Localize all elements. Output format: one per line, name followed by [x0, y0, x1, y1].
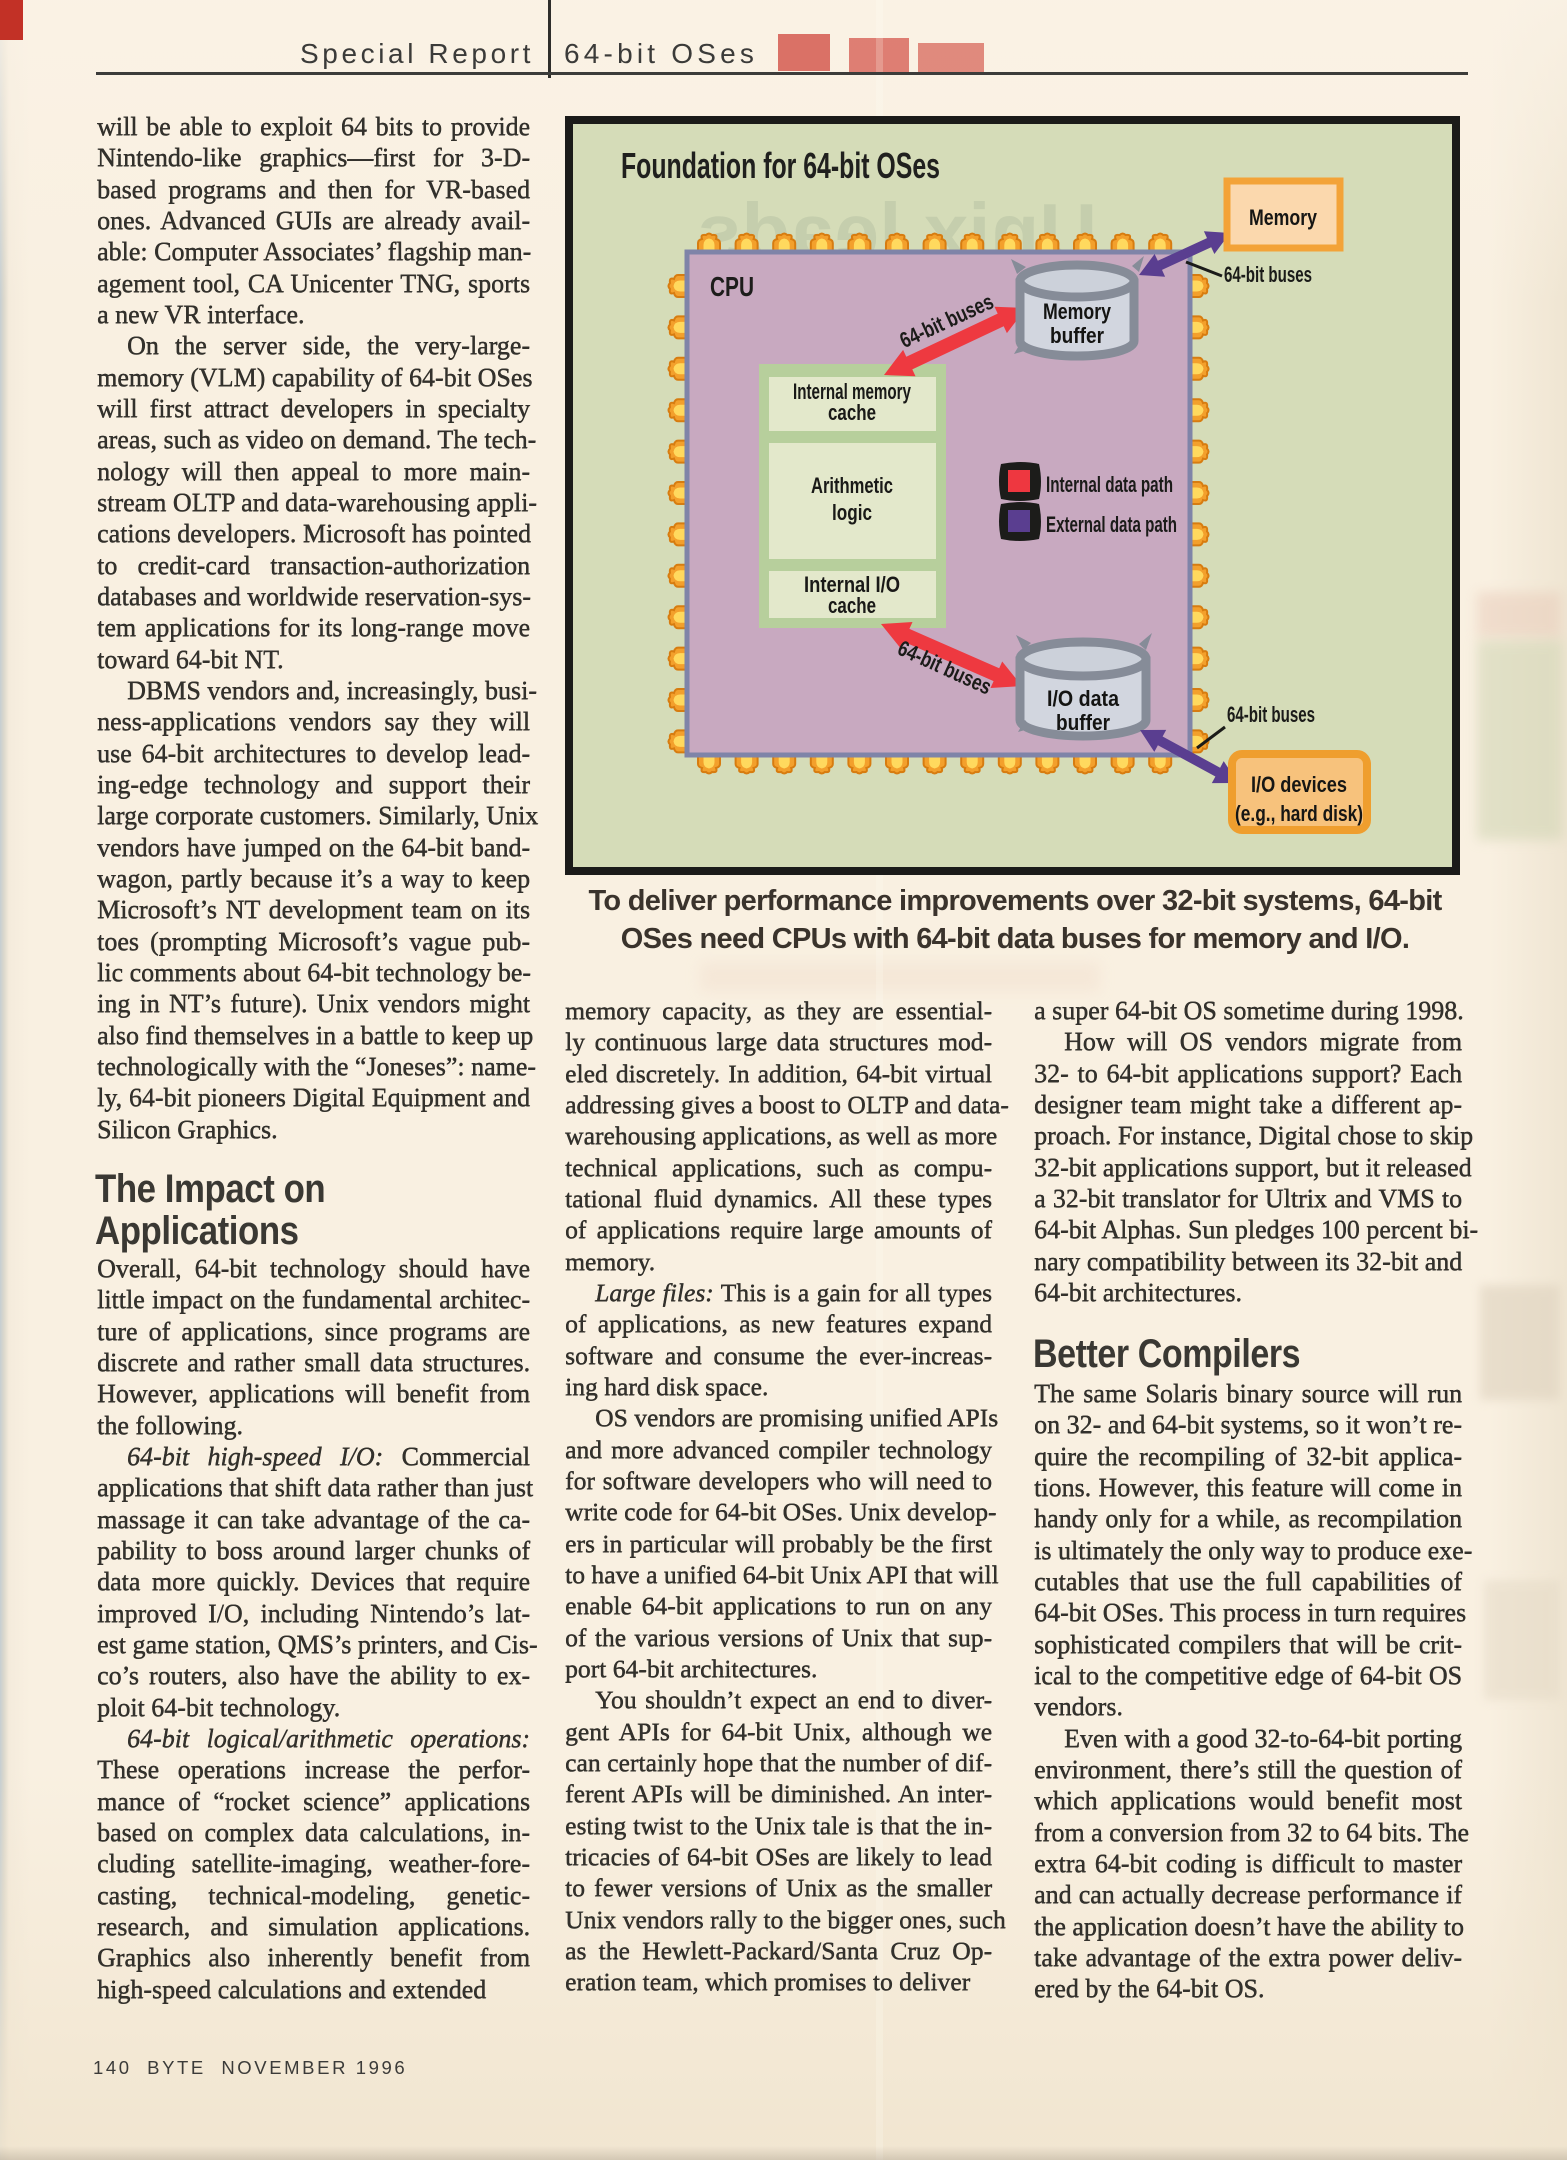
- svg-text:buffer: buffer: [1050, 323, 1104, 348]
- svg-text:64-bit buses: 64-bit buses: [1224, 262, 1312, 287]
- svg-text:buffer: buffer: [1056, 710, 1110, 735]
- svg-text:(e.g., hard disk): (e.g., hard disk): [1235, 801, 1363, 826]
- svg-text:cache: cache: [828, 593, 876, 618]
- svg-text:logic: logic: [832, 500, 872, 525]
- svg-text:Arithmetic: Arithmetic: [811, 473, 893, 498]
- svg-text:I/O data: I/O data: [1047, 686, 1120, 711]
- svg-text:CPU: CPU: [710, 271, 754, 302]
- svg-text:Internal data path: Internal data path: [1046, 472, 1173, 497]
- svg-text:64-bit buses: 64-bit buses: [1227, 702, 1315, 727]
- svg-text:Foundation for 64-bit OSes: Foundation for 64-bit OSes: [621, 145, 940, 186]
- svg-text:External data path: External data path: [1046, 512, 1177, 537]
- svg-text:Memory: Memory: [1249, 205, 1318, 230]
- svg-text:cache: cache: [828, 400, 876, 425]
- svg-text:Memory: Memory: [1043, 299, 1112, 324]
- svg-text:I/O devices: I/O devices: [1251, 772, 1347, 797]
